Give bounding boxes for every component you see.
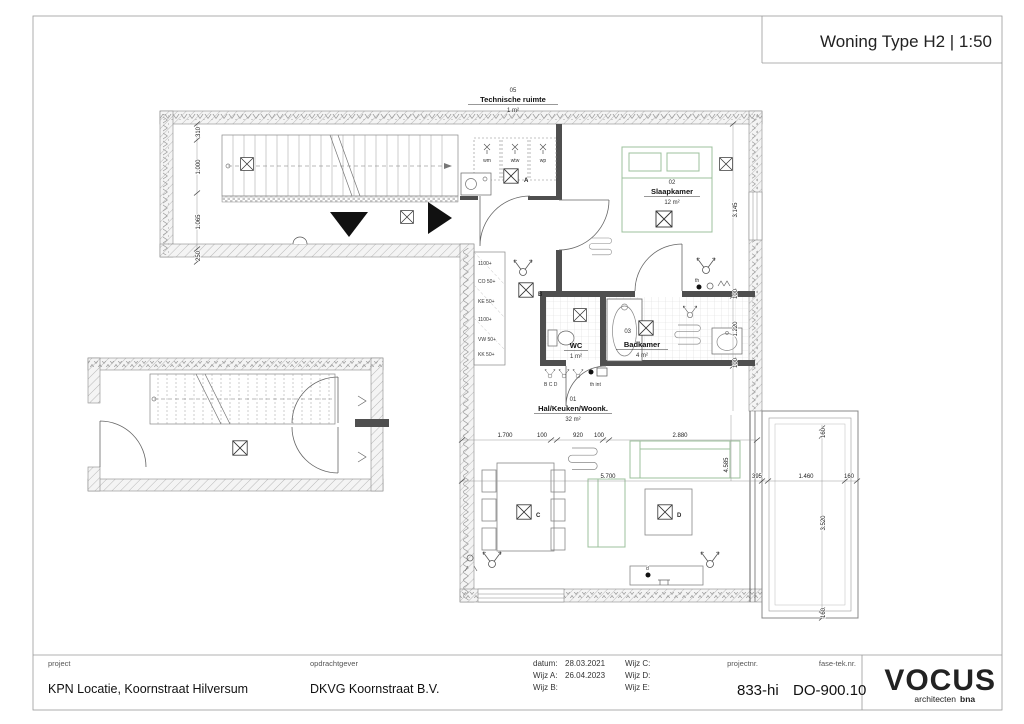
room-area: 4 m²	[636, 353, 648, 359]
lounge-chair	[588, 479, 625, 547]
dim-text: 1.065	[196, 214, 202, 230]
bedroom-window	[749, 192, 762, 240]
datum-value: 28.03.2021	[565, 659, 606, 668]
room-area: 1 m²	[507, 108, 519, 114]
ventilation-xbox-icon	[574, 309, 587, 322]
intercom-box-icon	[597, 368, 607, 376]
direction-triangle-down-icon	[330, 212, 368, 237]
client-label: opdrachtgever	[310, 659, 358, 668]
sensor-row: B C D th int	[544, 368, 607, 388]
dim-text: 920	[573, 433, 584, 439]
radiator-icon	[589, 238, 611, 255]
lower-stair-plan	[88, 358, 389, 491]
dim-text: 1.000	[196, 159, 202, 175]
ventilation-xbox-icon	[504, 169, 518, 183]
project-value: KPN Locatie, Koornstraat Hilversum	[48, 682, 248, 696]
technical-room: wm wtw wp A	[461, 138, 556, 195]
dim-text: 1.220	[733, 321, 739, 337]
room-area: 12 m²	[664, 200, 679, 206]
room-number: 03	[624, 329, 631, 335]
room-name: Slaapkamer	[651, 187, 693, 196]
dim-text: 160	[821, 427, 827, 438]
outlet-label: KE 50+	[478, 299, 495, 305]
ventilation-xbox-icon	[639, 321, 653, 335]
dim-text: 395	[752, 474, 763, 480]
drawing-title: Woning Type H2 | 1:50	[820, 32, 992, 51]
fase-label: fase-tek.nr.	[819, 659, 856, 668]
marker-d: D	[677, 513, 682, 519]
wijz-b-label: Wijz B:	[533, 683, 558, 692]
room-label-technische: 05 Technische ruimte 1 m²	[468, 88, 558, 114]
wijz-e-label: Wijz E:	[625, 683, 650, 692]
wall-lamp-icon	[358, 396, 366, 462]
balcony	[762, 411, 858, 618]
dim-text: 4.585	[724, 457, 730, 473]
room-name: Technische ruimte	[480, 95, 546, 104]
room-area: 32 m²	[565, 417, 580, 423]
logo-text: VOCUS	[884, 664, 996, 697]
living-room: C D d	[465, 441, 740, 585]
wijz-a-label: Wijz A:	[533, 671, 557, 680]
wijz-c-label: Wijz C:	[625, 659, 650, 668]
thermostat-dot-icon	[697, 285, 702, 290]
ventilation-xbox-icon	[241, 158, 254, 171]
dim-text: 100	[594, 433, 605, 439]
marker-th-int: th int	[590, 382, 601, 388]
room-name: WC	[570, 341, 583, 350]
chair	[482, 499, 496, 521]
marker-c: C	[536, 513, 541, 519]
room-name: Hal/Keuken/Woonk.	[538, 404, 608, 413]
project-label: project	[48, 659, 71, 668]
vocus-logo: VOCUS architecten bna	[884, 664, 996, 704]
client-value: DKVG Koornstraat B.V.	[310, 682, 439, 696]
logo-sub: architecten	[914, 694, 956, 704]
kitchen-counter: 1100+ CO 50+ KE 50+ 1100+ VW 50+ KK 50+	[474, 252, 505, 365]
room-label-slaapkamer: 02 Slaapkamer 12 m²	[644, 180, 700, 206]
wall-niche-icon	[293, 237, 307, 244]
bedroom: th	[589, 147, 732, 290]
fase-value: DO-900.10	[793, 682, 866, 699]
room-area: 1 m²	[570, 354, 582, 360]
stool-icon	[658, 580, 670, 585]
dim-text: 100	[733, 288, 739, 299]
marker-d-dot: d	[646, 566, 649, 572]
ventilation-xbox-icon	[519, 283, 533, 297]
drawing-sheet: Woning Type H2 | 1:50	[0, 0, 1024, 724]
room-number: 02	[669, 180, 676, 186]
projectnr-label: projectnr.	[727, 659, 758, 668]
outlet-label: VW 50+	[478, 337, 496, 343]
floor-heating-icon	[568, 448, 597, 470]
wp-label: wp	[540, 158, 547, 164]
datum-label: datum:	[533, 659, 557, 668]
projectnr-value: 833-hi	[737, 682, 779, 699]
staircase-upper	[222, 135, 458, 202]
dim-text: 160	[821, 607, 827, 618]
wm-label: wm	[483, 158, 491, 164]
dim-text: 1.700	[497, 433, 513, 439]
dim-text: 3.145	[733, 202, 739, 218]
sensor-icon	[483, 552, 501, 568]
toilet	[548, 330, 557, 346]
room-number: 01	[570, 397, 577, 403]
direction-triangle-right-icon	[428, 202, 452, 234]
sensor-icon	[701, 552, 719, 568]
socket-dot-icon	[646, 573, 651, 578]
ventilation-xbox-icon	[656, 211, 672, 227]
dim-text: 100	[733, 357, 739, 368]
sensor-icon	[514, 260, 532, 276]
outlet-label: CO 50+	[478, 279, 495, 285]
marker-a: A	[524, 178, 529, 184]
dim-text: 250	[196, 250, 202, 261]
room-label-hal: 01 Hal/Keuken/Woonk. 32 m²	[534, 397, 612, 423]
marker-b: B	[538, 292, 543, 298]
terrace-door-threshold	[478, 589, 564, 602]
logo-sub2: bna	[960, 694, 975, 704]
ventilation-xbox-icon	[517, 505, 531, 519]
outlet-label: KK 50+	[478, 352, 495, 358]
wijz-d-label: Wijz D:	[625, 671, 650, 680]
marker-bcd: B C D	[544, 382, 558, 388]
sideboard	[630, 566, 703, 585]
room-number: 05	[510, 88, 517, 94]
dim-text: 5.700	[600, 474, 616, 480]
chair	[551, 528, 565, 550]
dim-text: 2.880	[672, 433, 688, 439]
sensor-icon	[697, 258, 715, 274]
room-name: Badkamer	[624, 340, 660, 349]
dim-text: 100	[537, 433, 548, 439]
outlet-label: 1100+	[478, 317, 492, 323]
dim-text: 160	[844, 474, 855, 480]
dim-text: 1.460	[798, 474, 814, 480]
thermostat-dot-icon	[589, 370, 594, 375]
wtw-label: wtw	[511, 158, 520, 164]
chair	[482, 528, 496, 550]
wijz-a-value: 26.04.2023	[565, 671, 606, 680]
chair	[551, 499, 565, 521]
ventilation-xbox-icon	[658, 505, 672, 519]
title-block: project KPN Locatie, Koornstraat Hilvers…	[33, 655, 1002, 710]
floor-plan-drawing: Woning Type H2 | 1:50	[0, 0, 1024, 724]
marker-th: th	[695, 278, 699, 284]
ventilation-xbox-icon	[401, 211, 414, 224]
ventilation-xbox-icon	[233, 441, 247, 455]
outlet-label: 1100+	[478, 261, 492, 267]
ventilation-xbox-icon	[720, 158, 733, 171]
dim-text: 310	[196, 126, 202, 137]
dim-text: 3.520	[821, 515, 827, 531]
